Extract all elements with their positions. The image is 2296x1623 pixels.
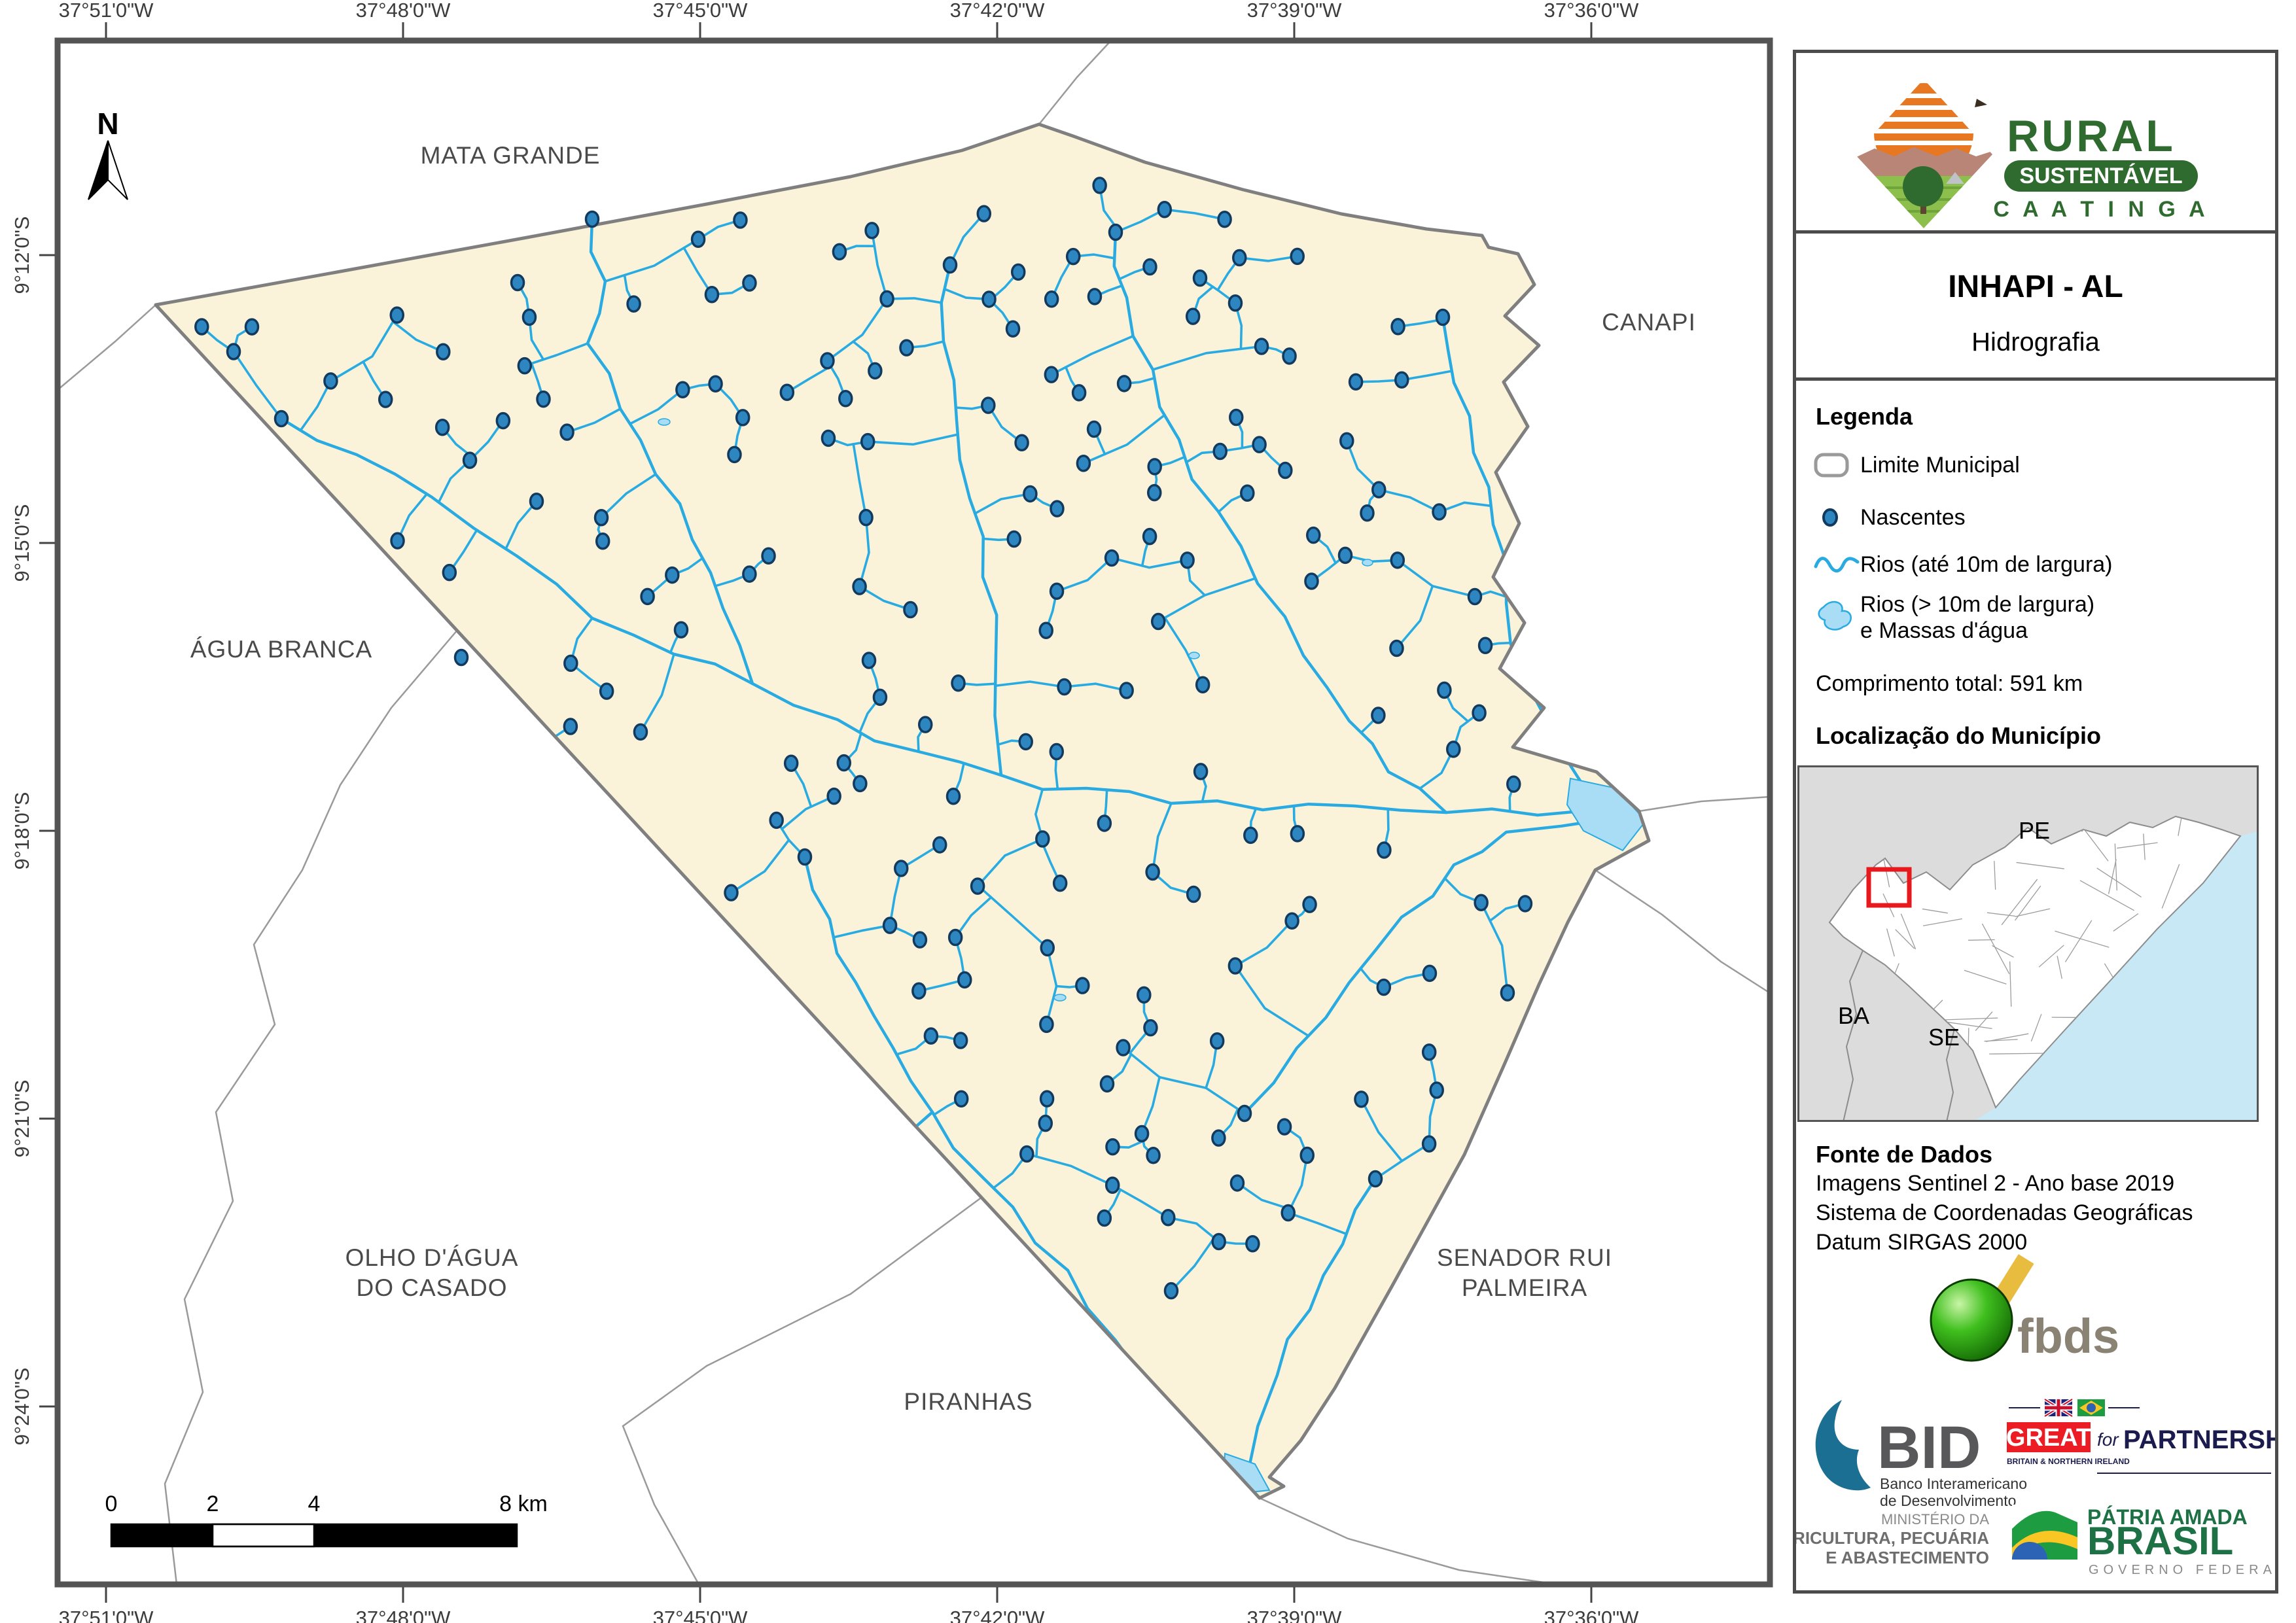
nascente-dot [1036, 831, 1049, 846]
nascente-dot [1377, 980, 1390, 995]
localizacao-heading: Localização do Município [1816, 722, 2101, 750]
scalebar-label: 8 km [499, 1492, 548, 1516]
nascente-dot [781, 385, 793, 400]
nascente-dot [1051, 501, 1063, 516]
lon-label: 37°39'0"W [1247, 1607, 1343, 1623]
nascente-dot [734, 213, 747, 228]
scalebar-label: 2 [207, 1492, 219, 1516]
nascente-dot [1423, 966, 1436, 981]
partner-logos: BID Banco Interamericano de Desenvolvime… [1796, 1388, 2275, 1590]
nascente-dot [586, 212, 599, 227]
neighbor-boundary-line [58, 305, 156, 390]
nascente-dot [1246, 1236, 1259, 1251]
nascente-dot [1054, 876, 1067, 891]
nascente-dot [1291, 249, 1303, 264]
lat-label: 9°21'0"S [10, 1080, 33, 1158]
nascente-dot [1093, 178, 1106, 193]
nascente-dot [1016, 435, 1028, 450]
nascente-dot [900, 340, 913, 355]
nascente-dot [1144, 529, 1156, 544]
logo-tagline: C A A T I N G A [1993, 197, 2208, 222]
neighbor-label: PALMEIRA [1462, 1274, 1587, 1301]
fonte-heading: Fonte de Dados [1816, 1141, 1992, 1168]
nascente-dot [1039, 1116, 1051, 1131]
neighbor-label: DO CASADO [356, 1274, 507, 1301]
neighbor-boundary-line [1260, 1498, 1557, 1584]
nascente-dot [634, 724, 646, 739]
nascente-dot [1106, 1140, 1119, 1155]
nascente-dot [1045, 367, 1057, 382]
nascente-dot [1438, 683, 1451, 698]
nascente-dot [728, 447, 741, 462]
nascente-dot [1158, 202, 1171, 217]
nascente-dot [1148, 485, 1161, 500]
nascente-dot [1138, 987, 1150, 1002]
nascente-dot [1396, 372, 1408, 387]
patria-line2: BRASIL [2087, 1519, 2233, 1563]
nascente-dot [1214, 444, 1226, 459]
nascente-dot [1058, 680, 1070, 695]
lon-label: 37°51'0"W [59, 0, 154, 22]
nascente-dot [1307, 528, 1320, 543]
lat-label: 9°18'0"S [10, 792, 33, 870]
nascente-dot [955, 1033, 967, 1048]
north-arrow-right [108, 141, 128, 200]
nascente-dot [1229, 958, 1241, 973]
nascente-dot [1350, 374, 1362, 389]
scalebar-label: 0 [105, 1492, 118, 1516]
nascente-dot [1106, 1178, 1119, 1193]
lon-label: 37°45'0"W [653, 0, 749, 22]
nascente-dot [1212, 1130, 1225, 1145]
uk-flag-icon [2045, 1399, 2072, 1416]
nascente-dot [822, 430, 834, 445]
nascente-dot [1391, 553, 1404, 568]
nascente-dot [828, 789, 840, 804]
nascente-dot [799, 850, 811, 865]
nascente-dot [1501, 985, 1513, 1000]
neighbor-boundary-line [1639, 797, 1770, 811]
logo-subtitle: SUSTENTÁVEL [2019, 164, 2182, 188]
nascente-dot [709, 376, 722, 391]
neighbor-label: PIRANHAS [904, 1388, 1033, 1415]
nascente-dot [904, 602, 917, 618]
nascente-dot [228, 344, 240, 359]
lat-label: 9°12'0"S [10, 217, 33, 294]
bid-sub2: de Desenvolvimento [1880, 1492, 2016, 1509]
nascente-dot [743, 567, 756, 582]
nascente-dot [443, 565, 455, 580]
fonte-line: Imagens Sentinel 2 - Ano base 2019 [1816, 1171, 2174, 1196]
ministerio-line3: E ABASTECIMENTO [1826, 1548, 1989, 1567]
nascente-dot [1008, 532, 1020, 547]
nascente-dot [597, 534, 609, 549]
nascente-dot [1088, 422, 1101, 437]
page-subtitle: Hidrografia [1796, 328, 2275, 357]
nascente-dot [464, 453, 476, 468]
legend-item-rios: Rios (até 10m de largura) [1813, 550, 2113, 580]
ministerio-line1: MINISTÉRIO DA [1881, 1511, 1989, 1527]
nascente-dot [1162, 1210, 1174, 1225]
nascente-dot [1007, 321, 1019, 336]
pond [565, 809, 576, 816]
nascente-dot [692, 232, 705, 247]
nascente-dot [455, 650, 468, 665]
nascente-dot [1282, 1206, 1294, 1221]
neighbor-label: SENADOR RUI [1437, 1244, 1612, 1271]
great-text: GREAT [2006, 1424, 2091, 1452]
nascente-dot [391, 307, 403, 323]
title-cell: INHAPI - AL Hidrografia [1796, 234, 2275, 381]
legend-item-massas: Rios (> 10m de largura) e Massas d'água [1813, 591, 2094, 644]
lon-label: 37°48'0"W [356, 0, 451, 22]
total-length: Comprimento total: 591 km [1816, 671, 2083, 697]
legend-label: Rios (até 10m de largura) [1860, 551, 2113, 578]
nascente-dot [770, 812, 783, 828]
nascente-dot [1423, 1045, 1436, 1060]
nascente-dot [1144, 1021, 1157, 1036]
nascente-dot [983, 292, 995, 307]
lon-label: 37°45'0"W [653, 1607, 749, 1623]
body-cell: Legenda Limite Municipal Nascentes Rios … [1796, 381, 2275, 1590]
nascente-dot [437, 344, 450, 359]
nascente-dot [860, 510, 872, 525]
inset-state-label: PE [2019, 817, 2050, 844]
nascente-dot [947, 789, 960, 804]
nascente-dot [1076, 978, 1089, 993]
page-title: INHAPI - AL [1796, 269, 2275, 305]
nascente-dot [1152, 614, 1165, 629]
nascente-dot [1473, 705, 1485, 720]
ministerio-line2: AGRICULTURA, PECUÁRIA [1796, 1528, 1989, 1548]
nascente-dot [884, 918, 896, 933]
nascente-dot [959, 972, 971, 987]
nascente-dot [866, 223, 878, 238]
lon-label: 37°36'0"W [1544, 1607, 1640, 1623]
nascente-dot [913, 983, 925, 998]
nascente-dot [518, 358, 531, 374]
nascente-dot [944, 258, 957, 273]
page: 37°51'0"W37°51'0"W37°48'0"W37°48'0"W37°4… [0, 0, 2296, 1623]
nascente-dot [1187, 309, 1199, 324]
nascente-dot [1106, 550, 1118, 565]
inset-state-label: BA [1838, 1002, 1869, 1029]
massa-dagua-symbol [1813, 593, 1860, 642]
nascente-dot [821, 353, 834, 368]
nascente-dot [725, 885, 737, 900]
nascente-dot [1041, 1091, 1053, 1106]
neighbor-label: OLHO D'ÁGUA [345, 1244, 519, 1271]
nascente-dot [1231, 1176, 1243, 1191]
nascente-symbol [1813, 502, 1860, 532]
nascente-dot [1144, 259, 1156, 274]
nascente-dot [1051, 584, 1063, 599]
nascente-dot [1233, 251, 1246, 266]
nascente-dot [1301, 1147, 1313, 1162]
nascente-dot [1021, 1147, 1033, 1162]
tree-icon [1903, 166, 1943, 207]
nascente-dot [675, 622, 687, 637]
lon-label: 37°36'0"W [1544, 0, 1640, 22]
nascente-dot [1279, 463, 1292, 478]
nascente-dot [641, 589, 654, 604]
nascente-dot [1136, 1126, 1148, 1142]
pond [1189, 652, 1199, 659]
pond [1054, 994, 1066, 1001]
nascente-dot [564, 719, 576, 734]
nascente-dot [1519, 896, 1531, 911]
patria-line3: GOVERNO FEDERAL [2089, 1563, 2275, 1577]
pond [1362, 559, 1373, 566]
rio-line-symbol [1813, 550, 1860, 580]
rural-sustentavel-caatinga-logo: RURAL SUSTENTÁVEL C A A T I N G A [1796, 53, 2275, 230]
nascente-dot [1193, 271, 1206, 286]
nascente-dot [1241, 485, 1254, 500]
nascente-dot [1373, 482, 1385, 497]
nascente-dot [833, 244, 845, 259]
great-small-text: BRITAIN & NORTHERN IRELAND [2007, 1457, 2130, 1466]
nascente-dot [785, 756, 798, 771]
nascente-dot [874, 689, 886, 705]
nascente-dot [1355, 1092, 1368, 1107]
nascente-dot [537, 392, 550, 407]
nascente-dot [601, 684, 613, 699]
nascente-dot [565, 655, 577, 671]
fbds-logo: fbds [1888, 1249, 2176, 1380]
lon-label: 37°51'0"W [59, 1607, 154, 1623]
nascente-dot [705, 287, 718, 302]
neighbor-label: MATA GRANDE [421, 142, 601, 169]
nascente-dot [1339, 548, 1351, 563]
nascente-dot [1165, 1283, 1177, 1299]
nascente-dot [1291, 826, 1303, 841]
nascente-dot [1479, 638, 1492, 653]
great-for-text: for [2097, 1429, 2119, 1450]
nascente-dot [677, 382, 689, 397]
nascente-dot [1041, 940, 1053, 955]
lon-label: 37°39'0"W [1247, 0, 1343, 22]
nascente-dot [1212, 1234, 1225, 1249]
brazil-flag-icon [2077, 1399, 2105, 1416]
nascente-dot [913, 932, 926, 947]
nascente-dot [862, 434, 874, 449]
nascente-dot [1118, 376, 1131, 391]
nascente-dot [325, 374, 337, 389]
nascente-dot [1067, 249, 1080, 264]
nascente-dot [1256, 339, 1268, 354]
nascente-dot [1046, 292, 1058, 307]
nascente-dot [245, 319, 258, 334]
nascente-dot [1469, 589, 1481, 604]
bird-icon [1975, 99, 1987, 107]
neighbor-boundary-line [165, 629, 458, 1584]
nascente-dot [561, 425, 573, 440]
nascente-dot [1077, 456, 1089, 471]
nascente-dot [1369, 1172, 1382, 1187]
nascente-dot [838, 756, 850, 771]
nascente-dot [1040, 623, 1052, 638]
north-arrow: N [88, 107, 128, 200]
nascente-dot [1088, 289, 1101, 304]
nascente-dot [196, 319, 208, 334]
nascente-dot [1361, 506, 1373, 521]
nascente-dot [512, 275, 524, 290]
scalebar-label: 4 [308, 1492, 321, 1516]
nascente-dot [595, 510, 608, 525]
nascente-dot [1147, 1148, 1159, 1163]
legend-heading: Legenda [1816, 403, 1913, 430]
limite-municipal-symbol [1813, 450, 1860, 480]
nascente-dot [1303, 897, 1316, 912]
nascente-dot [1024, 486, 1036, 501]
nascente-dot [1146, 864, 1159, 879]
nascente-dot [925, 1028, 937, 1043]
nascente-dot [523, 309, 535, 324]
nascente-dot [839, 391, 852, 406]
nascente-dot [1019, 734, 1032, 749]
nascente-dot [743, 275, 756, 290]
nascente-dot [1341, 433, 1353, 448]
nascente-dot [666, 568, 679, 583]
nascente-dot [1098, 1211, 1110, 1226]
fbds-text: fbds [2017, 1309, 2119, 1363]
bid-sub1: Banco Interamericano [1880, 1475, 2027, 1492]
nascente-dot [1040, 1017, 1053, 1032]
nascente-dot [1283, 349, 1296, 364]
nascente-dot [1286, 913, 1298, 928]
nascente-dot [1433, 504, 1445, 519]
bid-icon [1816, 1400, 1871, 1490]
logo-title: RURAL [2007, 111, 2176, 161]
nascente-dot [762, 548, 775, 563]
nascente-dot [436, 420, 449, 435]
nascente-dot [881, 291, 893, 306]
nascente-dot [854, 776, 866, 791]
nascente-dot [737, 410, 749, 425]
nascente-dot [978, 206, 990, 221]
partnership-text: PARTNERSHIP [2123, 1425, 2275, 1454]
nascente-dot [1230, 410, 1243, 425]
nascente-dot [1372, 708, 1385, 723]
pond [658, 419, 670, 425]
fonte-line: Sistema de Coordenadas Geográficas [1816, 1200, 2193, 1226]
info-panel: RURAL SUSTENTÁVEL C A A T I N G A INHAPI… [1793, 50, 2278, 1594]
nascente-dot [952, 676, 964, 691]
nascente-dot [1117, 1040, 1129, 1055]
logo-cell: RURAL SUSTENTÁVEL C A A T I N G A [1796, 53, 2275, 234]
legend-item-limite: Limite Municipal [1813, 450, 2020, 480]
nascente-dot [863, 653, 875, 668]
nascente-dot [919, 717, 932, 732]
nascente-dot [1430, 1083, 1443, 1098]
nascente-dot [1475, 895, 1487, 910]
inset-map-wrap: PEBASE [1797, 765, 2259, 1122]
nascente-dot [1305, 574, 1318, 589]
nascente-dot [1188, 887, 1200, 902]
nascente-dot [1012, 264, 1025, 279]
nascente-dot [853, 579, 866, 594]
north-arrow-left [88, 141, 108, 200]
nascente-dot [955, 1091, 968, 1106]
nascente-dot [627, 296, 640, 311]
neighbor-boundary-line [1039, 41, 1111, 124]
nascente-dot [391, 533, 404, 548]
nascente-dot [1101, 1076, 1114, 1091]
lon-label: 37°42'0"W [950, 0, 1046, 22]
nascente-dot [972, 879, 984, 894]
nascente-dot [1110, 225, 1122, 240]
legend-label: Rios (> 10m de largura) e Massas d'água [1860, 591, 2094, 644]
nascente-dot [1245, 828, 1257, 843]
neighbor-label: ÁGUA BRANCA [190, 636, 372, 663]
neighbor-label: CANAPI [1602, 309, 1696, 336]
nascente-dot [275, 411, 288, 427]
nascente-dot [1211, 1034, 1224, 1049]
nascente-dot [1120, 683, 1133, 698]
nascente-dot [1253, 437, 1265, 452]
legend-label: Limite Municipal [1860, 452, 2020, 478]
nascente-dot [982, 398, 995, 413]
nascente-dot [895, 861, 908, 876]
nascente-dot [1197, 677, 1209, 692]
nascente-dot [1437, 310, 1449, 325]
nascente-dot [869, 363, 881, 378]
nascente-dot [530, 494, 542, 509]
nascente-dot [949, 930, 962, 945]
neighbor-boundary-line [1595, 870, 1770, 993]
nascente-dot [1073, 385, 1086, 400]
nascente-dot [1218, 212, 1231, 227]
nascente-dot [380, 392, 392, 407]
nascente-dot [1239, 1106, 1251, 1121]
lon-label: 37°42'0"W [950, 1607, 1046, 1623]
nascente-dot [1390, 641, 1403, 656]
north-label: N [97, 107, 118, 141]
inset-map: PEBASE [1797, 765, 2259, 1122]
nascente-dot [1181, 553, 1193, 568]
nascente-dot [934, 837, 946, 852]
brasil-gov-icon [2012, 1505, 2077, 1560]
nascente-dot [1148, 459, 1161, 474]
nascente-dot [1508, 777, 1520, 792]
lat-label: 9°15'0"S [10, 504, 33, 582]
legend-label: Nascentes [1860, 504, 1966, 531]
nascente-dot [1423, 1136, 1436, 1151]
nascente-dot [1098, 816, 1110, 831]
bid-text: BID [1877, 1414, 1981, 1481]
nascente-dot [1378, 843, 1390, 858]
lon-label: 37°48'0"W [356, 1607, 451, 1623]
nascente-dot [497, 413, 509, 428]
lat-label: 9°24'0"S [10, 1368, 33, 1446]
inset-state-label: SE [1928, 1024, 1960, 1051]
nascente-dot [1447, 742, 1460, 757]
fbds-sphere-icon [1931, 1280, 2012, 1361]
nascente-dot [1195, 764, 1207, 779]
nascente-dot [1392, 319, 1404, 334]
nascente-dot [1050, 744, 1063, 759]
scale-bar: 0248 km [105, 1492, 548, 1546]
nascente-dot [1279, 1119, 1291, 1134]
legend-item-nascentes: Nascentes [1813, 502, 1966, 532]
nascente-dot [1229, 296, 1241, 311]
